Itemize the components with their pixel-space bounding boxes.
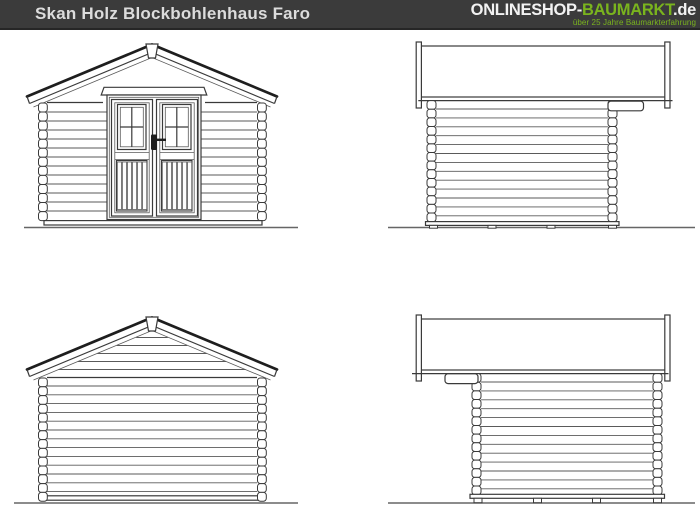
door-handle bbox=[151, 135, 157, 151]
front-elevation-view bbox=[24, 44, 298, 228]
foundation-foot bbox=[547, 225, 555, 228]
base-sill bbox=[426, 222, 620, 226]
rear-elevation-view bbox=[14, 317, 298, 503]
side-elevation-right-view bbox=[388, 42, 695, 228]
barge-board-right bbox=[665, 315, 670, 381]
base-sill bbox=[44, 221, 262, 225]
base-sill bbox=[44, 496, 262, 500]
roof-support-ledge bbox=[445, 374, 478, 384]
logo[interactable]: ONLINESHOP-BAUMARKT.de über 25 Jahre Bau… bbox=[471, 1, 696, 28]
barge-board-left bbox=[416, 315, 421, 381]
logo-part-onlineshop: ONLINESHOP- bbox=[471, 1, 582, 19]
log-end-column-right bbox=[258, 103, 267, 221]
door-handle-lever bbox=[155, 139, 167, 141]
technical-drawing bbox=[0, 30, 700, 525]
roof-plane bbox=[418, 319, 668, 370]
header-bar: Skan Holz Blockbohlenhaus Faro ONLINESHO… bbox=[0, 0, 700, 30]
foundation-foot bbox=[609, 225, 617, 228]
foundation-foot bbox=[593, 498, 601, 502]
log-end-column-left bbox=[39, 378, 48, 501]
logo-part-de: .de bbox=[673, 1, 696, 19]
roof-plane bbox=[418, 46, 668, 97]
base-sill bbox=[470, 494, 665, 498]
log-wall-lines bbox=[481, 382, 653, 489]
log-wall-lines bbox=[47, 386, 257, 492]
door-right-leaf bbox=[157, 100, 198, 217]
roof-fascia-line bbox=[30, 326, 275, 377]
ridge-cap bbox=[146, 317, 158, 331]
logo-text: ONLINESHOP-BAUMARKT.de bbox=[471, 2, 696, 19]
log-wall-lines bbox=[47, 112, 107, 211]
barge-board-left bbox=[416, 42, 421, 108]
log-end-column-left bbox=[472, 374, 481, 495]
log-end-column-left bbox=[39, 103, 48, 221]
log-end-column-right bbox=[608, 101, 617, 222]
foundation-foot bbox=[654, 498, 662, 502]
log-wall-lines bbox=[201, 112, 257, 211]
side-elevation-left-view bbox=[388, 315, 695, 503]
log-end-column-left bbox=[427, 101, 436, 222]
logo-part-baumarkt: BAUMARKT bbox=[582, 1, 673, 19]
ridge-cap bbox=[146, 44, 158, 58]
foundation-foot bbox=[488, 225, 496, 228]
page-title: Skan Holz Blockbohlenhaus Faro bbox=[35, 4, 310, 24]
gable-log-lines bbox=[58, 338, 245, 370]
foundation-foot bbox=[430, 225, 438, 228]
barge-board-right bbox=[665, 42, 670, 108]
foundation-foot bbox=[474, 498, 482, 502]
log-wall-lines bbox=[436, 109, 608, 216]
foundation-foot bbox=[534, 498, 542, 502]
log-end-column-right bbox=[653, 374, 662, 495]
roof-support-ledge bbox=[608, 101, 644, 111]
door-left-leaf bbox=[112, 100, 153, 217]
door-lintel bbox=[101, 87, 207, 95]
logo-tagline: über 25 Jahre Baumarkterfahrung bbox=[471, 19, 696, 27]
log-end-column-right bbox=[258, 378, 267, 501]
double-door bbox=[101, 87, 207, 219]
